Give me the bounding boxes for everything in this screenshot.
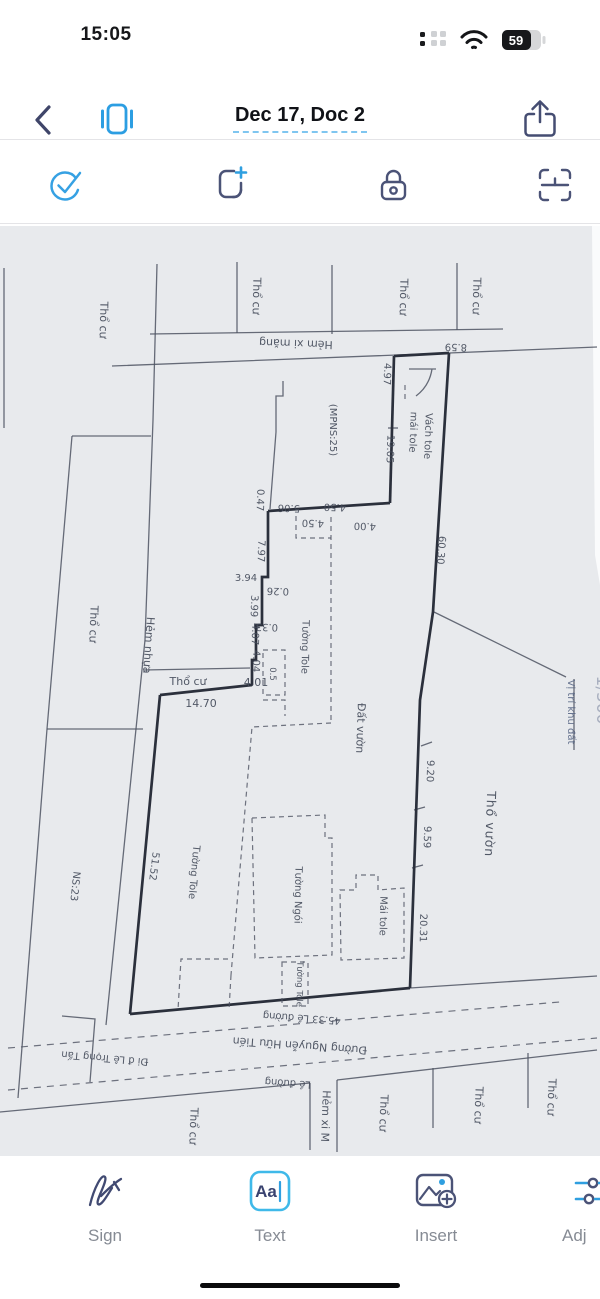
pages-icon [98, 102, 136, 136]
insert-button-label: Insert [386, 1226, 486, 1246]
doc-label: Thổ cư [470, 276, 484, 315]
doc-label: mái tole [406, 412, 419, 453]
doc-label: 0.5 [267, 667, 277, 681]
doc-label: Thổ cư [97, 300, 111, 339]
doc-label: Vị trí khu đất [565, 680, 577, 745]
doc-label: NS:23 [67, 871, 81, 902]
svg-text:59: 59 [509, 33, 523, 48]
scan-edge [592, 226, 600, 585]
cellular-icon [420, 31, 446, 46]
doc-label: 8.59 [445, 341, 468, 353]
text-button[interactable]: Aa [249, 1170, 291, 1212]
doc-label: Lề đường [264, 1075, 311, 1090]
doc-label: Thổ cư [250, 276, 264, 315]
status-icons: 59 [418, 28, 588, 52]
doc-label: 4.50 [324, 501, 347, 513]
doc-label: Mái tole [377, 896, 390, 936]
doc-label: 4.07 [249, 623, 261, 646]
approve-button[interactable] [48, 164, 88, 206]
doc-label: 4.04 [250, 650, 262, 673]
check-circle-icon [48, 164, 88, 206]
add-page-button[interactable] [212, 164, 252, 206]
doc-label: 4.01 [244, 676, 269, 689]
add-page-icon [212, 164, 252, 206]
doc-label: Thổ cư [186, 1106, 200, 1145]
doc-label: 4.00 [354, 520, 377, 532]
survey-labels: Thổ cư Thổ cư Thổ cư Thổ cư Hẻm xi măng … [61, 276, 600, 1145]
adjust-button-label: Adj [562, 1226, 600, 1246]
document-title[interactable]: Dec 17, Doc 2 [150, 104, 450, 127]
text-box-icon: Aa [249, 1170, 291, 1212]
doc-label: 9.20 [424, 760, 436, 783]
doc-label: 20.31 [417, 914, 428, 943]
adjust-sliders-icon [574, 1174, 600, 1210]
doc-label: Tường Tole [299, 619, 312, 674]
doc-label: 4.50 [302, 517, 325, 529]
doc-label: Thổ vườn [482, 790, 499, 858]
svg-text:Aa: Aa [255, 1182, 277, 1201]
doc-label: 4.97 [381, 363, 393, 386]
recognize-text-button[interactable] [536, 164, 576, 206]
doc-label: 45.33 Lề đường [262, 1009, 341, 1026]
map-scale-fragment: 1/500 [592, 676, 600, 725]
doc-label: 0.26 [267, 585, 290, 597]
status-time: 15:05 [64, 24, 148, 46]
doc-label: Thổ cư [169, 675, 208, 688]
lock-icon [374, 164, 414, 206]
back-button[interactable] [32, 104, 56, 136]
doc-label: 0.47 [254, 489, 266, 512]
sign-button[interactable] [81, 1168, 127, 1214]
doc-label: Đi đ Lê Trọng Tấn [61, 1048, 149, 1068]
share-icon [521, 98, 559, 140]
doc-label: 5.06 [278, 502, 301, 514]
doc-label: Thổ cư [397, 277, 411, 316]
doc-label: Hẻm nhựa [140, 616, 157, 674]
protect-button[interactable] [374, 164, 414, 206]
doc-label: 51.52 [146, 851, 160, 881]
doc-label: Hẻm xi măng [259, 336, 333, 352]
doc-label: Đất vườn [353, 703, 368, 754]
doc-label: Thổ cư [86, 604, 100, 643]
doc-label: 9.59 [421, 826, 433, 849]
text-button-label: Text [220, 1226, 320, 1246]
doc-label: 7.97 [255, 540, 267, 563]
doc-label: Hẻm xi M [318, 1090, 333, 1142]
insert-button[interactable] [414, 1170, 460, 1214]
doc-label: Tường Ngói [292, 865, 305, 923]
doc-label: Thổ cư [544, 1077, 558, 1116]
doc-label: 14.70 [185, 697, 217, 710]
signature-icon [81, 1168, 127, 1214]
share-button[interactable] [521, 98, 559, 140]
doc-label: Vách tole [421, 413, 435, 460]
doc-label: (MPNS:25) [327, 404, 338, 456]
battery-icon: 59 [502, 30, 546, 50]
doc-label: Thổ cư [376, 1093, 390, 1132]
survey-drawing: Thổ cư Thổ cư Thổ cư Thổ cư Hẻm xi măng … [0, 226, 600, 1156]
doc-label: 3.94 [235, 573, 257, 584]
pages-button[interactable] [98, 102, 136, 136]
back-chevron-icon [32, 104, 56, 136]
doc-label: Thổ cư [471, 1085, 485, 1124]
home-indicator[interactable] [200, 1283, 400, 1288]
doc-label: Tường Tole [186, 844, 203, 900]
doc-label: Tường Tole [294, 960, 306, 1007]
scanned-document-page[interactable]: Thổ cư Thổ cư Thổ cư Thổ cư Hẻm xi măng … [0, 226, 600, 1156]
insert-image-icon [414, 1170, 460, 1214]
doc-label: Đường Nguyễn Hữu Tiến [232, 1034, 367, 1056]
ocr-frame-icon [536, 164, 576, 206]
sign-button-label: Sign [55, 1226, 155, 1246]
doc-label: 3.99 [248, 595, 260, 618]
doc-label: 60.30 [434, 536, 447, 565]
adjust-button[interactable] [574, 1174, 600, 1210]
wifi-icon [462, 32, 486, 48]
doc-label: 19.05 [384, 435, 396, 464]
